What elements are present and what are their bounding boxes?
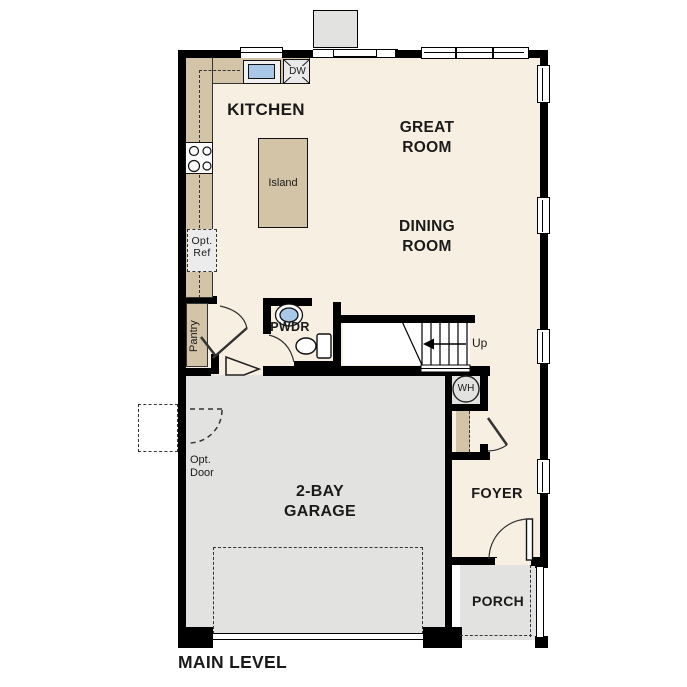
wall-garage-bottom-right-stub <box>423 627 462 648</box>
coat-closet-shelf <box>456 411 470 452</box>
opt-door-label-2: Door <box>190 467 234 480</box>
wall-top-3 <box>395 50 422 58</box>
chimney <box>313 10 358 48</box>
opt-ref-label-2: Ref <box>188 248 216 260</box>
right-window-2 <box>537 197 550 234</box>
floor-plan: DW Opt. Ref Island Pantry Opt. Door <box>0 0 687 687</box>
foyer-window <box>537 459 550 494</box>
great-room-label-2: ROOM <box>377 139 477 156</box>
right-window-3 <box>537 329 550 364</box>
opt-ref-label-1: Opt. <box>188 236 216 248</box>
wall-door-post <box>211 354 219 374</box>
wall-closet-bottom <box>445 452 490 460</box>
fireplace <box>333 49 377 57</box>
range-burners-icon <box>186 143 214 175</box>
plan-title: MAIN LEVEL <box>178 653 378 672</box>
kitchen-sink-basin <box>248 64 275 79</box>
kitchen-label: KITCHEN <box>206 101 326 120</box>
great-room-triple-window <box>421 47 529 59</box>
opt-door-label: Opt. Door <box>190 454 234 479</box>
wall-top-2 <box>283 50 313 58</box>
wall-garage-bottom-left-stub <box>178 627 213 648</box>
wall-hall-bottom-left <box>186 368 211 376</box>
garage-label-2: GARAGE <box>250 503 390 521</box>
great-room-label-1: GREAT <box>377 119 477 136</box>
island-label: Island <box>268 177 297 189</box>
porch-dashed-bottom <box>460 635 532 636</box>
porch-label: PORCH <box>458 594 538 609</box>
opt-door-label-1: Opt. <box>190 454 234 467</box>
wh-label: WH <box>453 383 479 394</box>
optional-refrigerator: Opt. Ref <box>187 229 217 272</box>
wall-wh-bottom <box>452 404 488 411</box>
porch-post-bottom <box>535 636 548 648</box>
optional-door-stoop <box>138 404 178 452</box>
pwdr-label: PWDR <box>264 321 316 335</box>
wall-foyer-bottom <box>452 557 497 565</box>
wall-garage-right <box>445 367 452 635</box>
pantry-label: Pantry <box>188 309 206 363</box>
wall-left <box>178 50 186 648</box>
dishwasher: DW <box>283 59 310 84</box>
wall-stair-top <box>337 315 475 323</box>
wall-pwdr-bottom <box>294 361 341 370</box>
dishwasher-label: DW <box>287 66 308 77</box>
upper-cabinet-line-h <box>199 70 240 71</box>
garage-door <box>213 633 423 640</box>
dining-room-label-2: ROOM <box>377 238 477 255</box>
wall-top-1 <box>178 50 240 58</box>
range <box>185 142 213 174</box>
garage-label-1: 2-BAY <box>250 483 390 501</box>
right-window-1 <box>537 65 550 103</box>
kitchen-sink <box>243 60 281 84</box>
foyer-label: FOYER <box>457 487 537 503</box>
garage-apron-dashed <box>213 547 423 634</box>
coat-closet-rod-line <box>469 411 470 452</box>
kitchen-island: Island <box>258 138 308 228</box>
dining-room-label-1: DINING <box>377 218 477 235</box>
pantry-shelf: Pantry <box>186 303 208 367</box>
up-label: Up <box>472 336 502 350</box>
